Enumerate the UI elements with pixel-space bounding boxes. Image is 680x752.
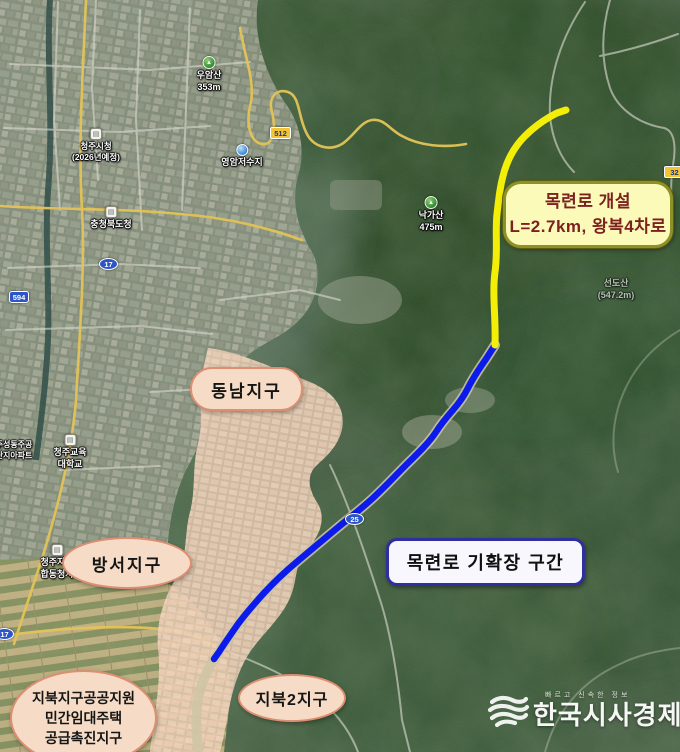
district-line2: 민간임대주택 xyxy=(45,708,122,728)
press-watermark: 빠르고 신속한 정보 한국시사경제 xyxy=(486,688,680,732)
wave-globe-logo xyxy=(486,688,530,732)
district-label: 동남지구 xyxy=(211,377,282,402)
district-jibuk2: 지북2지구 xyxy=(238,674,346,722)
shield-number: 25 xyxy=(350,515,358,524)
district-label: 지북2지구 xyxy=(256,686,329,710)
widening-label: 목련로 기확장 구간 xyxy=(407,549,564,575)
route-shield-512: 512 xyxy=(270,127,291,139)
new-road-line1: 목련로 개설 xyxy=(545,190,631,215)
map-background xyxy=(0,0,680,752)
shield-number: 512 xyxy=(274,129,287,138)
watermark-brand: 한국시사경제 xyxy=(533,702,680,728)
shield-number: 17 xyxy=(104,260,112,269)
shield-number: 594 xyxy=(13,293,26,302)
route-shield-17: 17 xyxy=(99,258,118,270)
district-bangseo: 방서지구 xyxy=(62,537,192,589)
route-shield-25: 25 xyxy=(345,513,364,525)
film-grain xyxy=(0,0,680,752)
widening-section-callout: 목련로 기확장 구간 xyxy=(386,538,585,586)
shield-number: 17 xyxy=(0,630,8,639)
district-label: 방서지구 xyxy=(92,551,163,576)
satellite-map-image[interactable]: ▲ 우암산 353m ▲ 낙가산 475m 선도산 (547.2m) 영암저수지… xyxy=(0,0,680,752)
district-line1: 지북지구공공지원 xyxy=(32,688,135,708)
route-shield-594: 594 xyxy=(9,291,29,303)
watermark-tagline: 빠르고 신속한 정보 xyxy=(545,692,680,699)
route-shield-32: 32 xyxy=(664,166,680,178)
new-road-line2: L=2.7km, 왕복4차로 xyxy=(510,215,667,240)
watermark-text: 빠르고 신속한 정보 한국시사경제 xyxy=(533,692,680,728)
district-dongnam: 동남지구 xyxy=(190,367,303,411)
district-line3: 공급촉진지구 xyxy=(45,728,122,748)
new-road-callout: 목련로 개설 L=2.7km, 왕복4차로 xyxy=(503,181,673,248)
shield-number: 32 xyxy=(670,168,678,177)
